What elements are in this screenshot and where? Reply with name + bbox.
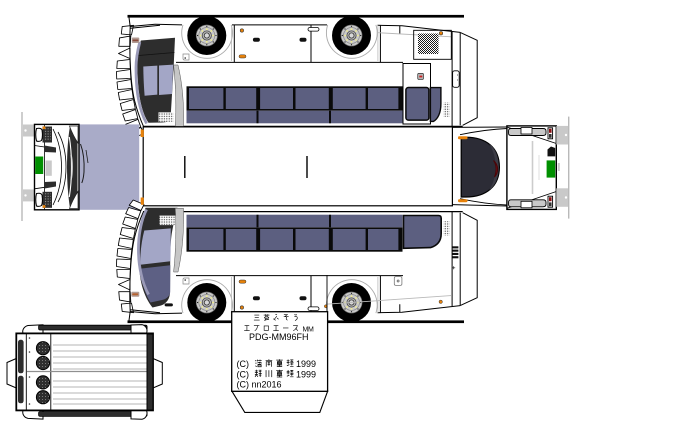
svg-text:1999: 1999 bbox=[296, 359, 316, 369]
svg-text:1999: 1999 bbox=[296, 369, 316, 379]
svg-text:(C): (C) bbox=[237, 369, 250, 379]
svg-text:(C) nn2016: (C) nn2016 bbox=[237, 380, 282, 390]
svg-text:PDG-MM96FH: PDG-MM96FH bbox=[249, 332, 309, 342]
svg-text:(C): (C) bbox=[237, 359, 250, 369]
